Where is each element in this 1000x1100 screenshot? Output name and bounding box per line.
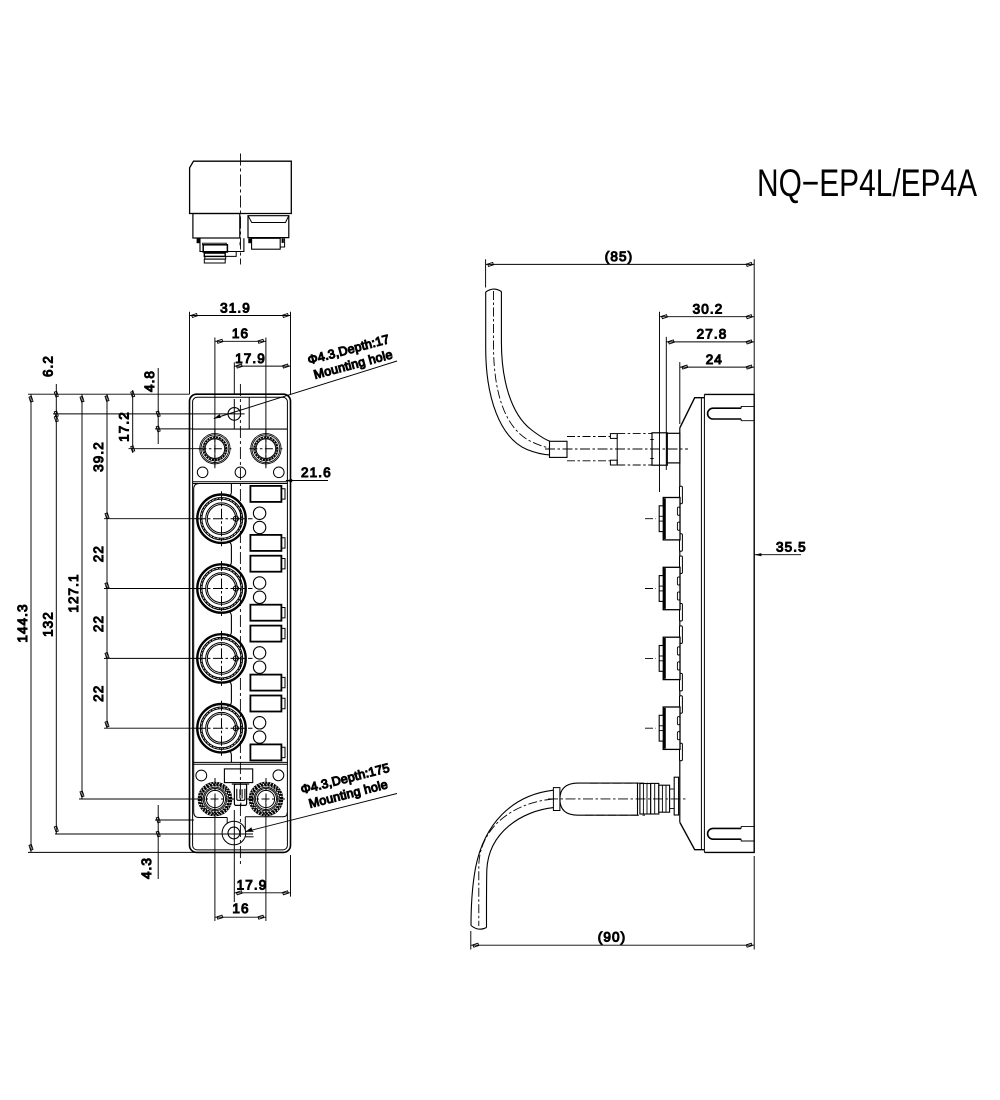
svg-text:22: 22 [91, 615, 106, 632]
svg-text:22: 22 [91, 685, 106, 702]
svg-text:4.3: 4.3 [139, 857, 154, 879]
svg-text:22: 22 [91, 545, 106, 562]
svg-text:144.3: 144.3 [15, 603, 30, 642]
svg-text:(90): (90) [598, 930, 626, 945]
svg-text:17.9: 17.9 [235, 351, 266, 366]
svg-text:27.8: 27.8 [697, 327, 728, 342]
svg-text:16: 16 [232, 901, 249, 916]
svg-text:16: 16 [232, 326, 249, 341]
svg-text:4.8: 4.8 [142, 370, 157, 392]
svg-text:35.5: 35.5 [776, 540, 807, 555]
svg-text:31.9: 31.9 [220, 301, 251, 316]
svg-text:NQ−EP4L/EP4A: NQ−EP4L/EP4A [757, 162, 977, 205]
svg-text:39.2: 39.2 [91, 441, 106, 472]
svg-text:17.2: 17.2 [117, 411, 132, 442]
svg-text:21.6: 21.6 [301, 465, 332, 480]
svg-text:30.2: 30.2 [693, 302, 724, 317]
svg-text:24: 24 [706, 352, 723, 367]
svg-text:(85): (85) [605, 249, 633, 264]
svg-text:17.9: 17.9 [237, 877, 268, 892]
svg-text:127.1: 127.1 [66, 573, 81, 612]
svg-text:6.2: 6.2 [40, 355, 55, 377]
svg-text:132: 132 [40, 611, 55, 637]
